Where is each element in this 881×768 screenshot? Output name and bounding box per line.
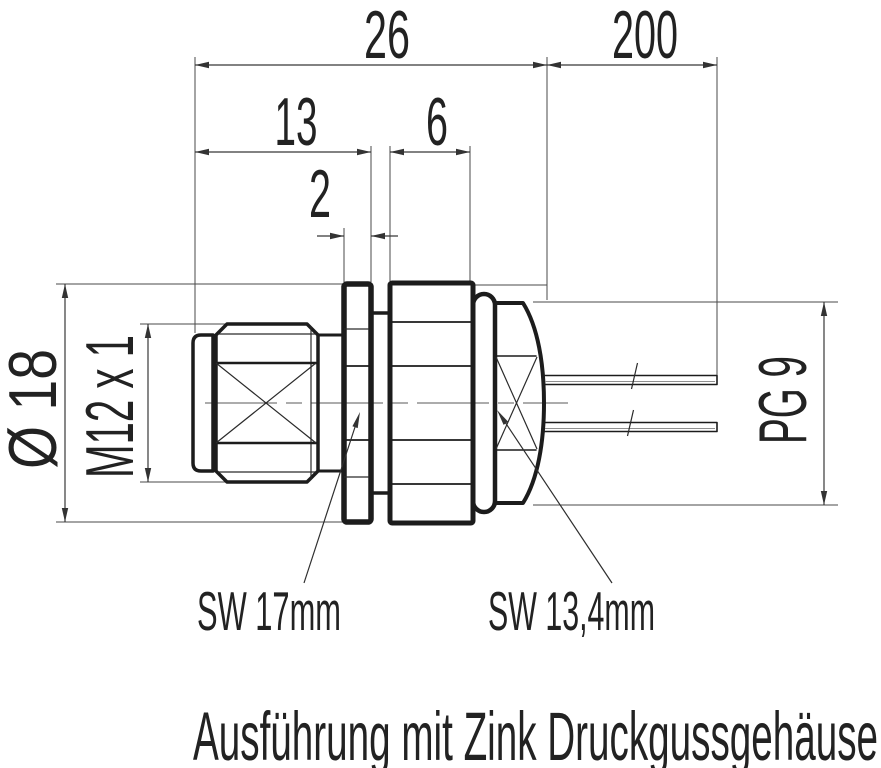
drawing-caption: Ausführung mit Zink Druckgussgehäuse xyxy=(193,698,878,768)
dim-200-label: 200 xyxy=(612,0,678,73)
dim-13-label: 13 xyxy=(275,84,318,160)
dim-pg-label: PG 9 xyxy=(745,356,821,444)
sw-hex-label: SW 13,4mm xyxy=(488,580,655,642)
dim-diameter-label: Ø 18 xyxy=(0,349,71,469)
leader-lines xyxy=(304,410,612,583)
dim-2-label: 2 xyxy=(309,156,331,232)
wire-leads xyxy=(543,363,717,436)
connector-technical-drawing: 26 200 13 6 2 Ø 18 M12 x 1 PG 9 SW 17mm … xyxy=(0,0,881,768)
sw-flange-label: SW 17mm xyxy=(197,580,341,642)
dim-6-label: 6 xyxy=(426,84,448,160)
dim-thread-label: M12 x 1 xyxy=(72,335,148,478)
dimension-labels: 26 200 13 6 2 Ø 18 M12 x 1 PG 9 SW 17mm … xyxy=(0,0,821,642)
dim-26-label: 26 xyxy=(364,0,410,73)
technical-drawing-page: 26 200 13 6 2 Ø 18 M12 x 1 PG 9 SW 17mm … xyxy=(0,0,881,768)
